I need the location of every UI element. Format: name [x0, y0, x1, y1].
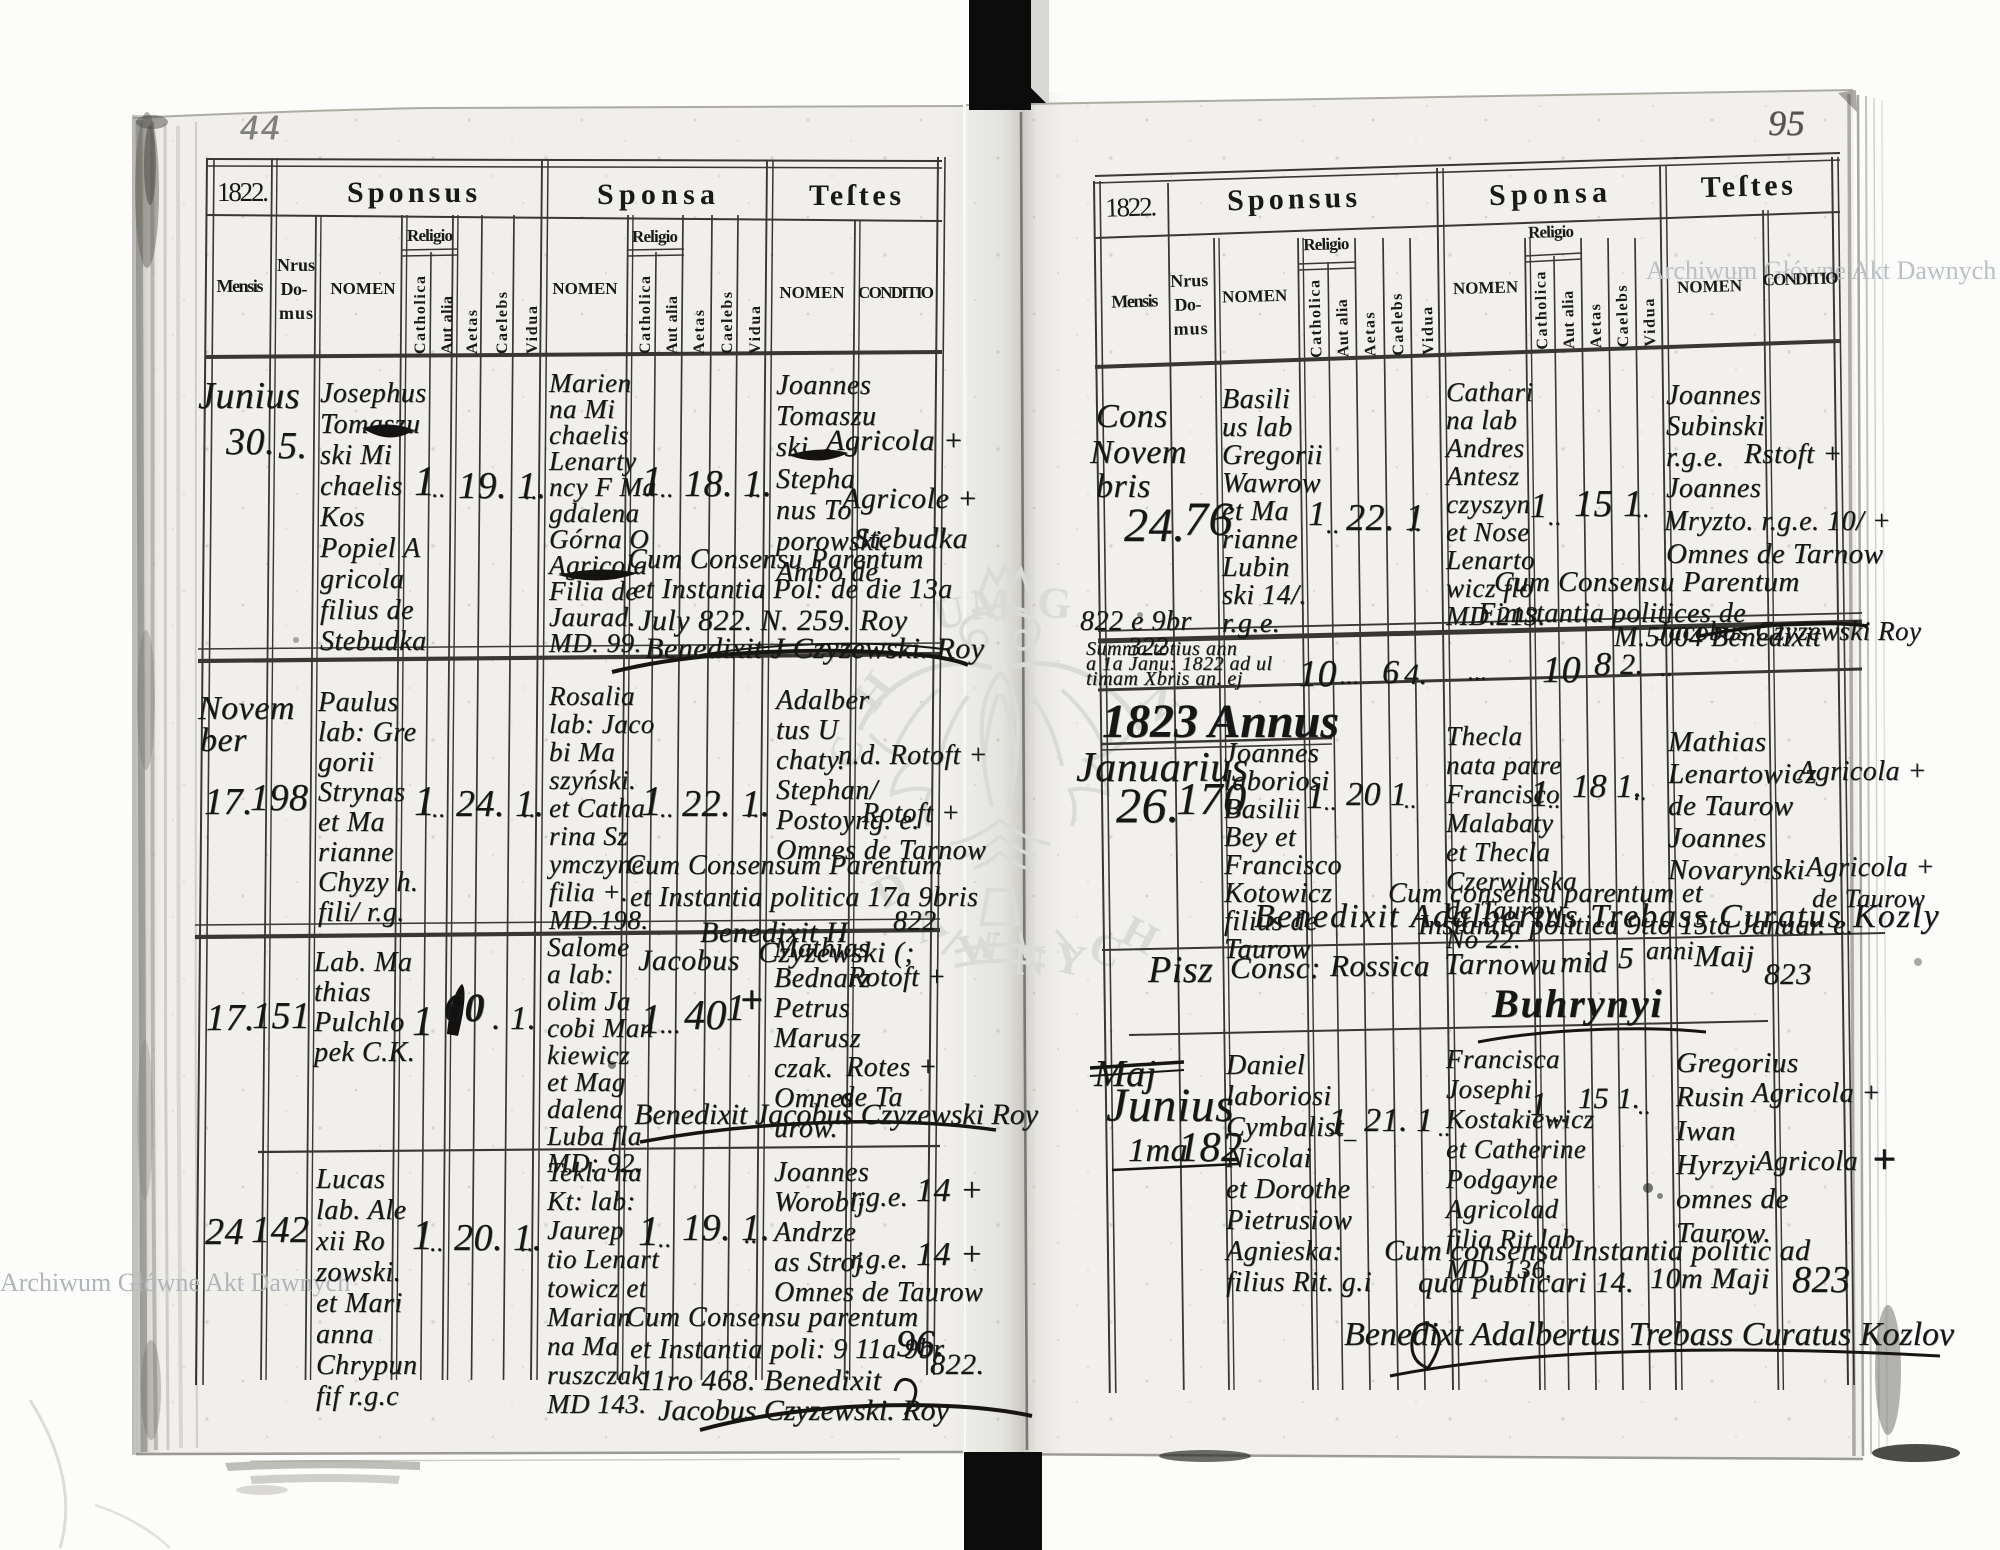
- svg-text:Caelebs: Caelebs: [719, 292, 736, 354]
- svg-text:mus: mus: [1173, 318, 1208, 339]
- svg-text:Caelebs: Caelebs: [494, 292, 511, 354]
- svg-text:Aetas: Aetas: [1361, 312, 1379, 356]
- svg-text:Mensis: Mensis: [1111, 290, 1159, 311]
- svg-text:Catholica: Catholica: [1532, 271, 1551, 349]
- svg-text:Caelebs: Caelebs: [1614, 285, 1633, 347]
- svg-text:NOMEN: NOMEN: [1453, 277, 1519, 298]
- svg-text:Nrus: Nrus: [1170, 270, 1209, 291]
- svg-text:Catholica: Catholica: [637, 276, 654, 354]
- svg-text:Catholica: Catholica: [1306, 280, 1325, 358]
- svg-text:Teſtes: Teſtes: [809, 179, 901, 212]
- svg-text:Sponsa: Sponsa: [1489, 176, 1608, 212]
- svg-text:Vidua: Vidua: [1419, 307, 1437, 355]
- svg-text:Sponsus: Sponsus: [1227, 181, 1358, 218]
- svg-text:1822.: 1822.: [1105, 191, 1158, 222]
- svg-text:Religio: Religio: [407, 226, 453, 245]
- svg-text:Religio: Religio: [1303, 234, 1350, 254]
- svg-text:Mensis: Mensis: [217, 276, 264, 296]
- svg-text:Religio: Religio: [1528, 222, 1575, 242]
- svg-text:Aut alia: Aut alia: [1560, 291, 1579, 349]
- svg-text:Vidua: Vidua: [1641, 298, 1659, 346]
- svg-text:Aetas: Aetas: [464, 310, 481, 354]
- svg-text:Sponsus: Sponsus: [347, 176, 477, 209]
- svg-text:Sponsa: Sponsa: [597, 178, 715, 211]
- svg-text:Aut alia: Aut alia: [439, 296, 456, 354]
- svg-text:Aetas: Aetas: [1587, 304, 1605, 348]
- svg-text:Teſtes: Teſtes: [1700, 169, 1793, 205]
- svg-text:CONDITIO: CONDITIO: [1762, 268, 1839, 289]
- svg-text:Religio: Religio: [632, 227, 678, 246]
- svg-text:1822.: 1822.: [217, 177, 269, 207]
- svg-text:Catholica: Catholica: [412, 276, 429, 354]
- svg-text:Aut alia: Aut alia: [1334, 299, 1353, 357]
- svg-text:NOMEN: NOMEN: [779, 283, 845, 302]
- svg-text:Aut alia: Aut alia: [664, 296, 681, 354]
- svg-text:CONDITIO: CONDITIO: [858, 283, 934, 302]
- svg-text:NOMEN: NOMEN: [330, 279, 396, 298]
- svg-text:NOMEN: NOMEN: [1222, 286, 1288, 307]
- svg-text:NOMEN: NOMEN: [552, 279, 618, 298]
- svg-text:Vidua: Vidua: [524, 306, 541, 354]
- svg-text:Caelebs: Caelebs: [1389, 293, 1408, 355]
- svg-text:NOMEN: NOMEN: [1677, 276, 1743, 297]
- svg-text:Do-: Do-: [1174, 294, 1202, 315]
- svg-text:Do-: Do-: [281, 279, 308, 299]
- svg-text:Vidua: Vidua: [747, 306, 764, 354]
- svg-text:Aetas: Aetas: [691, 310, 708, 354]
- svg-text:mus: mus: [279, 303, 313, 323]
- svg-text:Nrus: Nrus: [277, 255, 315, 275]
